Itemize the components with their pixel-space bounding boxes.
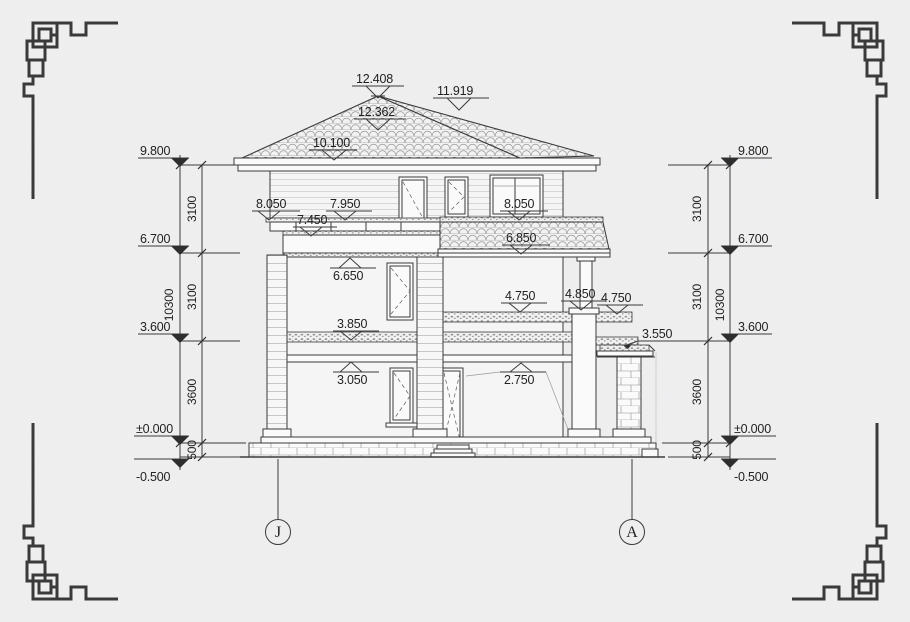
left-pilaster-base — [263, 429, 291, 437]
level-label: 9.800 — [738, 144, 769, 158]
level-label: -0.500 — [136, 470, 170, 484]
mark-label: 10.100 — [313, 136, 350, 150]
stone-pillar — [617, 357, 641, 437]
segment-dim: 3600 — [690, 379, 704, 405]
side-step — [642, 449, 658, 457]
mark-label: 7.950 — [330, 197, 361, 211]
level-label: ±0.000 — [734, 422, 771, 436]
mark-label: 3.850 — [337, 317, 368, 331]
terrace-column-lower — [572, 314, 596, 437]
porch-molding — [597, 351, 653, 356]
segment-dim: 3100 — [185, 196, 199, 222]
window-sill — [386, 423, 417, 427]
eave-fascia — [234, 158, 600, 165]
terrace-slab — [443, 312, 632, 322]
mark-label: 7.450 — [297, 213, 328, 227]
mark-label: 6.650 — [333, 269, 364, 283]
segment-dim: 3100 — [185, 284, 199, 310]
mark-label: 12.362 — [358, 105, 395, 119]
mark-label: 11.919 — [437, 84, 473, 98]
grid-letter-J: J — [275, 524, 281, 541]
column-cap — [577, 257, 595, 261]
left-balcony — [266, 218, 445, 257]
segment-dim: 3600 — [185, 379, 199, 405]
mark-label: 8.050 — [256, 197, 287, 211]
mark-label: 3.550 — [642, 327, 673, 341]
elevation-svg: 12.408 11.919 12.362 10.100 8.050 7.950 … — [0, 0, 910, 622]
mark-label: 3.050 — [337, 373, 368, 387]
mark-label: 4.850 — [565, 287, 596, 301]
segment-dim: 500 — [690, 440, 704, 460]
column-collar — [569, 308, 599, 314]
level-label: 9.800 — [140, 144, 171, 158]
mark-label: 2.750 — [504, 373, 535, 387]
level-label: ±0.000 — [136, 422, 173, 436]
door-step-2 — [434, 449, 472, 453]
column-base — [568, 429, 600, 437]
door-step-1 — [437, 445, 469, 449]
center-pilaster-base — [413, 429, 447, 437]
mark-label: 4.750 — [601, 291, 632, 305]
balcony-cap — [266, 218, 445, 222]
upper-door — [399, 177, 427, 222]
mark-label: 8.050 — [504, 197, 535, 211]
ground-works — [240, 437, 665, 457]
eave-soffit — [238, 165, 596, 171]
level-label: 6.700 — [738, 232, 769, 246]
level-label: 6.700 — [140, 232, 171, 246]
balcony-beam — [283, 235, 443, 253]
plinth-band — [261, 437, 651, 443]
mark-label: 6.850 — [506, 231, 537, 245]
segment-dim: 3100 — [690, 284, 704, 310]
overall-dim: 10300 — [162, 288, 176, 321]
mark-label: 4.750 — [505, 289, 536, 303]
beam-bottom — [283, 253, 443, 257]
second-window — [387, 263, 413, 320]
level-label: 3.600 — [738, 320, 769, 334]
stone-pillar-base — [613, 429, 645, 437]
segment-dim: 3100 — [690, 196, 704, 222]
upper-window-small — [445, 177, 468, 217]
elevation-drawing: 12.408 11.919 12.362 10.100 8.050 7.950 … — [0, 0, 910, 622]
mark-label: 12.408 — [356, 72, 393, 86]
level-label: -0.500 — [734, 470, 768, 484]
segment-dim: 500 — [185, 440, 199, 460]
overall-dim: 10300 — [713, 288, 727, 321]
porch-band — [596, 337, 638, 345]
grid-letter-A: A — [626, 524, 638, 541]
center-pilaster — [417, 257, 443, 437]
left-pilaster — [267, 255, 287, 437]
first-window — [386, 368, 417, 427]
